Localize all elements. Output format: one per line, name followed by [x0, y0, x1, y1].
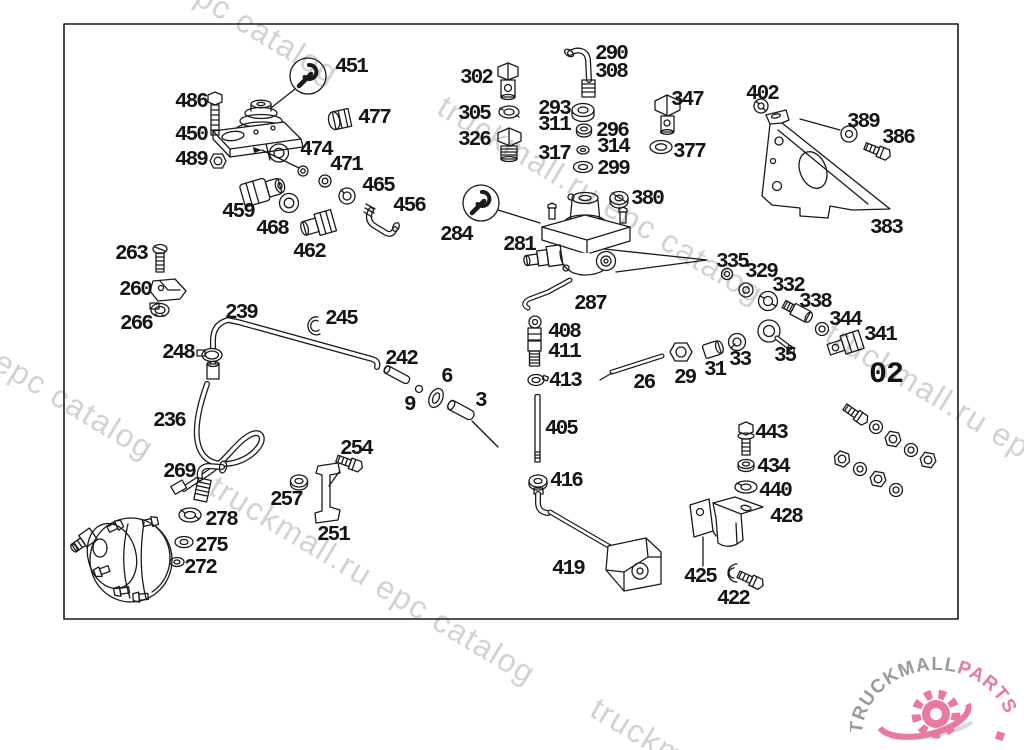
part-299-drawing: [574, 162, 593, 173]
part-275-drawing: [175, 537, 193, 548]
part-474-drawing: [298, 166, 308, 176]
part-248-drawing: [197, 349, 222, 362]
part-305-drawing: [499, 106, 519, 118]
part-338-drawing: [781, 299, 814, 324]
part-245-drawing: [308, 317, 320, 335]
page: truckmall.ru epc catalogtruckmall.ru epc…: [0, 0, 1024, 750]
part-434-drawing: [738, 460, 754, 472]
part-263-drawing: [153, 245, 167, 273]
part-257-drawing: [291, 475, 308, 490]
part-419-drawing: [534, 488, 661, 591]
part-284-wrench-drawing: [463, 185, 540, 223]
part-35-drawing: [758, 320, 795, 354]
part-425-drawing: [728, 564, 737, 582]
part-281-valve-drawing: [522, 193, 707, 276]
part-293-311-drawing: [572, 104, 594, 122]
part-302-drawing: [498, 63, 518, 100]
part-450-assembly-drawing: [213, 58, 326, 168]
part-428-bracket-drawing: [690, 497, 763, 566]
part-317-drawing: [577, 146, 589, 154]
part-6-drawing: [426, 386, 446, 410]
logo-gear-icon: [916, 694, 956, 734]
part-260-drawing: [150, 279, 186, 301]
part-489-drawing: [210, 154, 226, 168]
part-251-drawing: [315, 463, 340, 523]
part-242-drawing: [383, 365, 411, 385]
part-266-drawing: [150, 303, 169, 317]
part-465-drawing: [339, 188, 355, 204]
part-332-drawing: [759, 292, 778, 311]
part-290-308-drawing: [563, 48, 595, 97]
part-335-drawing: [722, 269, 733, 280]
part-31-drawing: [702, 339, 725, 358]
part-377-drawing: [650, 141, 672, 154]
part-380-drawing: [610, 192, 628, 209]
brand-logo: TRUCKMALLPARTS: [850, 640, 1024, 750]
part-329-drawing: [739, 283, 753, 297]
diagram-border: [64, 24, 958, 619]
part-3-drawing: [446, 399, 498, 447]
part-29-drawing: [670, 343, 692, 361]
part-402-drawing: [754, 99, 768, 113]
part-443-drawing: [738, 422, 754, 455]
part-462-drawing: [298, 210, 336, 240]
part-405-drawing: [535, 395, 540, 463]
part-440-drawing: [735, 481, 757, 493]
part-239-hose-drawing: [207, 320, 377, 379]
part-287-drawing: [525, 280, 570, 308]
part-408-411-drawing: [528, 316, 541, 366]
part-341-drawing: [826, 330, 864, 359]
part-468-drawing: [280, 194, 299, 213]
part-26-drawing: [600, 356, 662, 380]
part-33-drawing: [729, 334, 746, 351]
part-389-drawing: [841, 126, 857, 142]
part-456-drawing: [364, 204, 401, 234]
part-477-drawing: [327, 109, 352, 131]
part-471-drawing: [319, 175, 331, 187]
part-9-drawing: [416, 386, 423, 393]
part-236-hose-drawing: [171, 384, 262, 494]
part-383-drawing: [762, 110, 890, 218]
parts-diagram-canvas: [0, 0, 1024, 750]
part-296-314-drawing: [577, 124, 592, 137]
part-486-drawing: [208, 92, 222, 135]
part-278-drawing: [179, 508, 201, 522]
hardware-cluster-drawing: [832, 402, 937, 496]
brake-chamber-drawing: [68, 515, 172, 602]
part-422-drawing: [736, 569, 765, 590]
part-386-drawing: [863, 141, 892, 161]
part-344-drawing: [816, 323, 829, 336]
part-347-drawing: [655, 95, 680, 134]
part-413-drawing: [528, 375, 549, 386]
part-326-drawing: [498, 128, 521, 162]
